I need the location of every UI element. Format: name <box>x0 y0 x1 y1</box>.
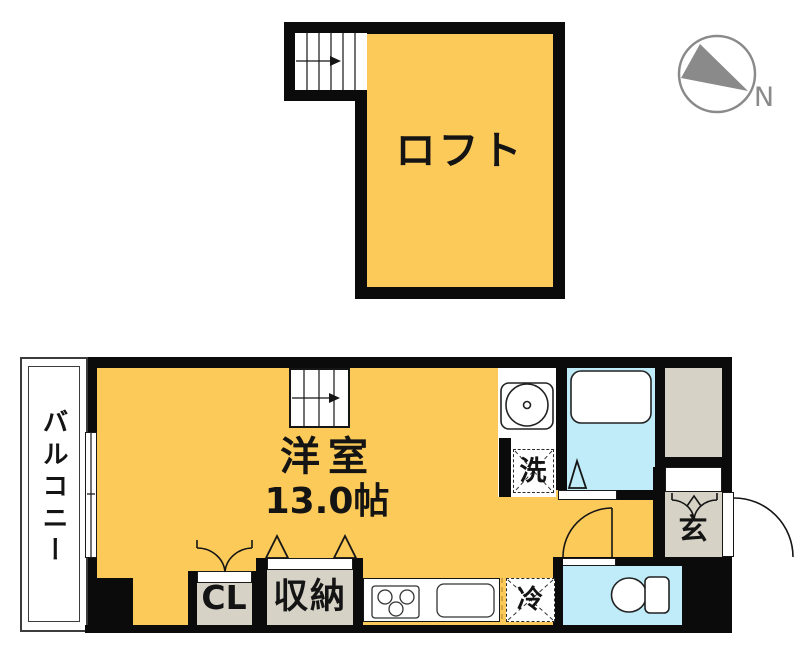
left-wall-upper <box>88 368 97 432</box>
bathroom <box>567 368 655 490</box>
right-wall <box>722 357 732 492</box>
balcony-window <box>85 432 97 558</box>
nook-wall-stub <box>499 438 511 497</box>
north-label: N <box>750 84 778 111</box>
shoe-cabinet <box>665 467 722 492</box>
room-size-label: 13.0帖 <box>227 484 427 520</box>
bath-door-threshold <box>558 490 617 500</box>
kitchen-counter <box>363 578 500 622</box>
bottom-wall <box>85 625 732 633</box>
bottom-right-wall-block <box>682 557 732 625</box>
storage-top-band <box>267 558 353 570</box>
toilet-door-threshold <box>560 558 616 566</box>
floorplan-canvas: ロフト 洋室 13.0帖 バルコニー CL 収納 玄 洗 冷 N <box>0 0 800 653</box>
top-wall <box>88 357 732 368</box>
bath-left-wall <box>556 368 567 490</box>
closet-label: CL <box>196 581 252 614</box>
storage-right-wall <box>353 558 363 633</box>
entrance-door-leaf <box>722 492 734 557</box>
compass-north-icon <box>679 36 755 112</box>
washer-label: 洗 <box>519 458 547 485</box>
main-stairs <box>289 368 350 428</box>
upper-service-closet <box>665 368 722 457</box>
balcony-label: バルコニー <box>40 408 66 568</box>
fridge-label: 冷 <box>516 587 544 613</box>
entrance-label: 玄 <box>676 515 710 544</box>
toilet-room <box>563 566 682 625</box>
bath-right-wall <box>655 368 665 467</box>
entrance-door-swing-icon <box>734 498 793 557</box>
storage-label: 収納 <box>266 580 354 615</box>
loft-label: ロフト <box>367 131 553 171</box>
room-label: 洋室 <box>228 437 428 477</box>
closet-bottom-wall <box>655 457 722 467</box>
genkan-left-wall <box>653 467 665 557</box>
loft-stairs <box>295 33 367 90</box>
left-wall-lower <box>88 558 97 633</box>
